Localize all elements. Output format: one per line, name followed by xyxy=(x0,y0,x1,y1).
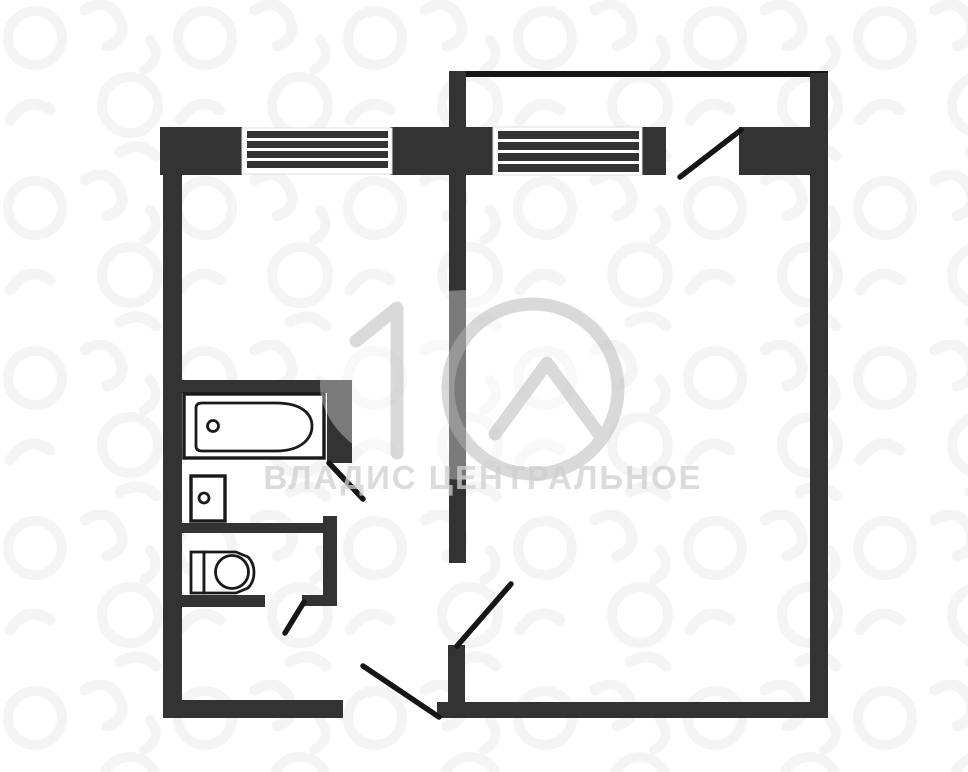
wall-left xyxy=(163,175,182,718)
wall-bottom-right xyxy=(437,702,828,718)
floor-plan-page: ВЛАДИС ЦЕНТРАЛЬНОЕ xyxy=(0,0,968,772)
floor-plan-canvas: ВЛАДИС ЦЕНТРАЛЬНОЕ xyxy=(0,0,968,772)
wall-bath-wc-divider xyxy=(182,523,323,533)
wall-right xyxy=(810,73,828,718)
wall-bottom-left xyxy=(163,700,343,718)
wall-wc-bottom xyxy=(182,595,265,607)
wall-window-jamb xyxy=(640,127,666,175)
wall-bathroom-right xyxy=(323,516,337,606)
toilet-icon xyxy=(191,552,254,593)
wall-top-left-block xyxy=(160,127,242,175)
watermark-text: ВЛАДИС ЦЕНТРАЛЬНОЕ xyxy=(263,459,702,496)
window-right xyxy=(493,127,642,175)
window-left xyxy=(242,128,392,174)
washbasin-icon xyxy=(191,476,225,521)
balcony-edge-wall xyxy=(449,71,828,77)
bathtub-icon xyxy=(184,394,324,458)
wall-top-center-block xyxy=(390,127,493,175)
wall-top-right-block xyxy=(739,127,811,175)
wall-central-door-stub xyxy=(448,645,465,703)
